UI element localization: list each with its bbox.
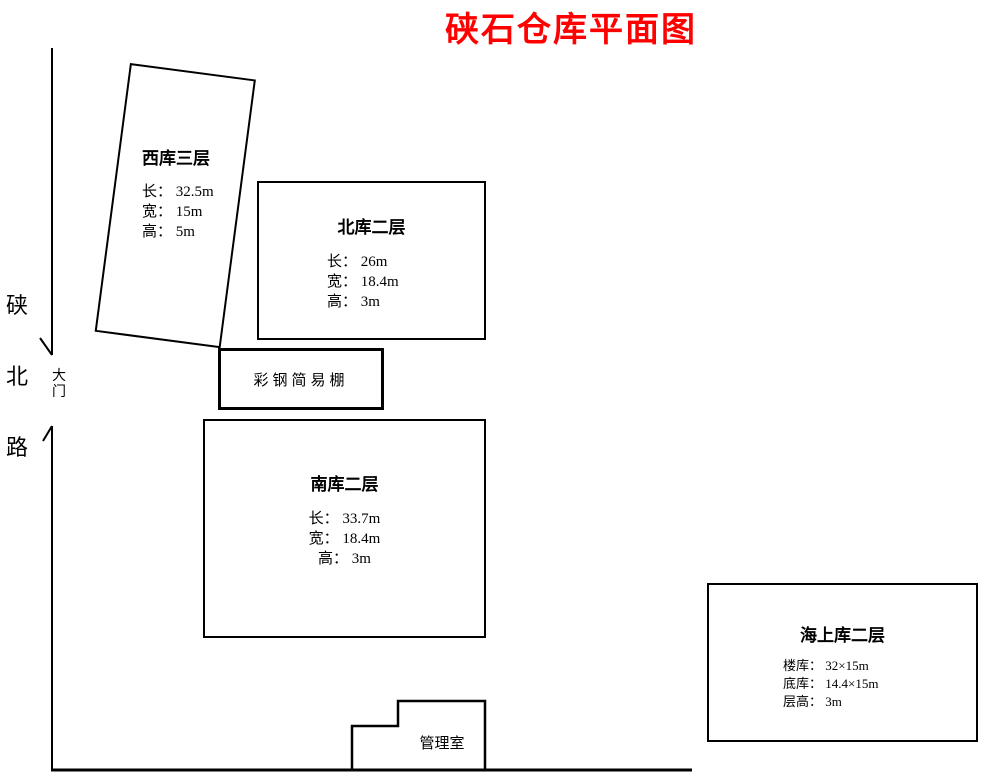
spec-line: 楼库： 32×15m <box>783 657 878 675</box>
spec-line: 底库： 14.4×15m <box>783 675 878 693</box>
north-warehouse-name: 北库二层 <box>257 213 486 238</box>
spec-line: 长： 33.7m <box>203 509 486 529</box>
gate-arrow-down-icon <box>40 338 52 355</box>
page-title: 硖石仓库平面图 <box>361 2 781 51</box>
spec-line: 宽： 18.4m <box>203 529 486 549</box>
shed-box: 彩钢简易棚 <box>218 348 384 410</box>
west-warehouse-specs: 长： 32.5m 宽： 15m 高： 5m <box>142 182 214 242</box>
west-warehouse-name: 西库三层 <box>142 144 210 169</box>
management-office-name: 管理室 <box>398 732 486 753</box>
sea-warehouse-specs: 楼库： 32×15m 底库： 14.4×15m 层高： 3m <box>783 657 878 711</box>
sea-warehouse-name: 海上库二层 <box>707 621 978 646</box>
north-warehouse-specs: 长： 26m 宽： 18.4m 高： 3m <box>327 252 399 312</box>
spec-line: 高： 3m <box>203 549 486 569</box>
south-warehouse-name: 南库二层 <box>203 470 486 495</box>
gate-label: 大门 <box>51 369 67 401</box>
spec-line: 宽： 15m <box>142 202 214 222</box>
shed-name: 彩钢简易棚 <box>253 369 348 390</box>
spec-line: 层高： 3m <box>783 693 878 711</box>
spec-line: 长： 26m <box>327 252 399 272</box>
spec-line: 长： 32.5m <box>142 182 214 202</box>
spec-line: 高： 3m <box>327 292 399 312</box>
gate-arrow-up-icon <box>43 426 52 441</box>
warehouse-floor-plan: 硖石仓库平面图 硖北路 大门 西库三层 长： 32.5m 宽： 15m 高： 5… <box>0 0 982 774</box>
road-name-label: 硖北路 <box>4 270 30 483</box>
spec-line: 高： 5m <box>142 222 214 242</box>
south-warehouse-specs: 长： 33.7m 宽： 18.4m 高： 3m <box>203 509 486 569</box>
spec-line: 宽： 18.4m <box>327 272 399 292</box>
